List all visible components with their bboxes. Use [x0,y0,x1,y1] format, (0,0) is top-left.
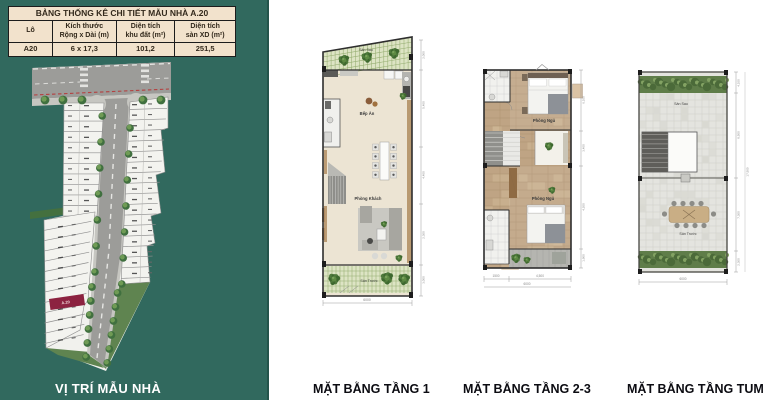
svg-text:6000: 6000 [363,298,371,302]
svg-text:3,000: 3,000 [422,276,426,284]
svg-text:2,300: 2,300 [737,258,741,266]
svg-text:6000: 6000 [523,282,530,286]
svg-text:1,900: 1,900 [582,254,586,262]
svg-text:2,300: 2,300 [422,231,426,239]
svg-text:6000: 6000 [679,277,686,281]
svg-text:Sân Trước: Sân Trước [679,232,696,236]
svg-text:3,400: 3,400 [582,144,586,152]
svg-text:17,500: 17,500 [746,167,750,177]
svg-text:5,400: 5,400 [422,101,426,109]
svg-text:1500: 1500 [492,274,499,278]
svg-text:8,500: 8,500 [737,131,741,139]
svg-text:4,500: 4,500 [536,274,544,278]
svg-text:Bếp Ăn: Bếp Ăn [360,111,375,116]
svg-text:Sân Trước: Sân Trước [360,279,377,283]
svg-text:4,400: 4,400 [422,171,426,179]
svg-text:6,100: 6,100 [582,96,586,104]
svg-text:7,300: 7,300 [737,211,741,219]
svg-text:Sân Sau: Sân Sau [359,48,373,52]
svg-text:4,100: 4,100 [737,79,741,87]
svg-text:2,000: 2,000 [422,51,426,59]
svg-text:Phòng Khách: Phòng Khách [355,196,382,201]
svg-text:Sân Sau: Sân Sau [674,102,688,106]
svg-text:Phòng Ngủ: Phòng Ngủ [533,118,556,123]
svg-text:Phòng Ngủ: Phòng Ngủ [532,196,555,201]
svg-text:4,200: 4,200 [582,203,586,211]
